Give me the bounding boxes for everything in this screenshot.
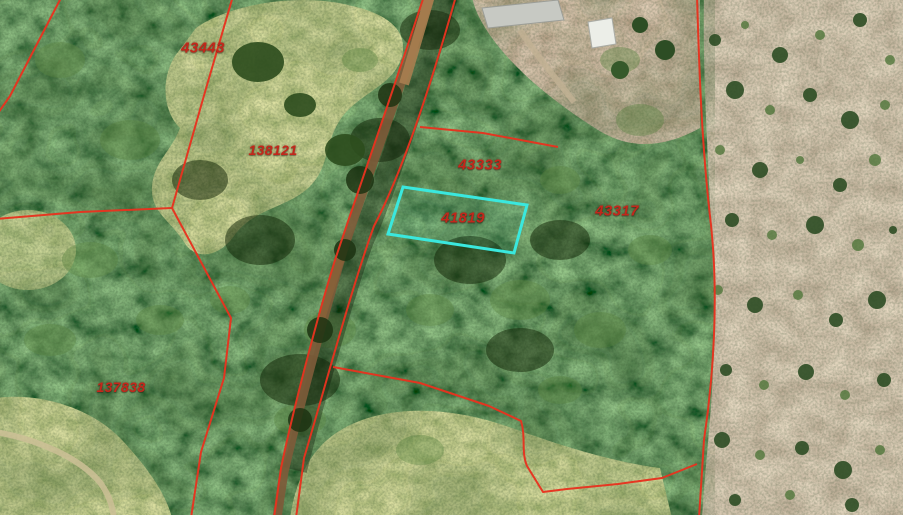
yard-tree-3 [611, 61, 629, 79]
satellite-imagery [0, 0, 903, 515]
building-small-white [588, 18, 616, 48]
yard-tree-2 [655, 40, 675, 60]
aerial-map-canvas[interactable]: 43443 138121 43333 41819 43317 137838 [0, 0, 903, 515]
yard-tree-1 [632, 17, 648, 33]
